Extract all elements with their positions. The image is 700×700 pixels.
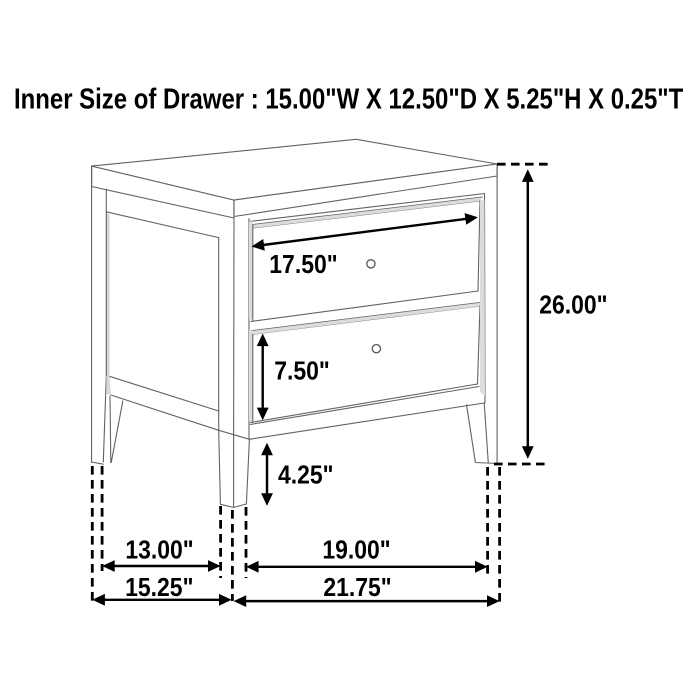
svg-text:Inner Size of Drawer : 15.00"W: Inner Size of Drawer : 15.00"W X 12.50"D…	[14, 83, 683, 115]
svg-text:17.50": 17.50"	[269, 251, 337, 280]
svg-text:21.75": 21.75"	[323, 574, 391, 603]
svg-text:4.25": 4.25"	[278, 461, 334, 490]
svg-text:13.00": 13.00"	[125, 536, 193, 565]
svg-text:15.25": 15.25"	[125, 574, 193, 603]
svg-text:19.00": 19.00"	[322, 536, 390, 565]
svg-text:7.50": 7.50"	[274, 357, 330, 386]
svg-text:26.00": 26.00"	[539, 291, 607, 320]
